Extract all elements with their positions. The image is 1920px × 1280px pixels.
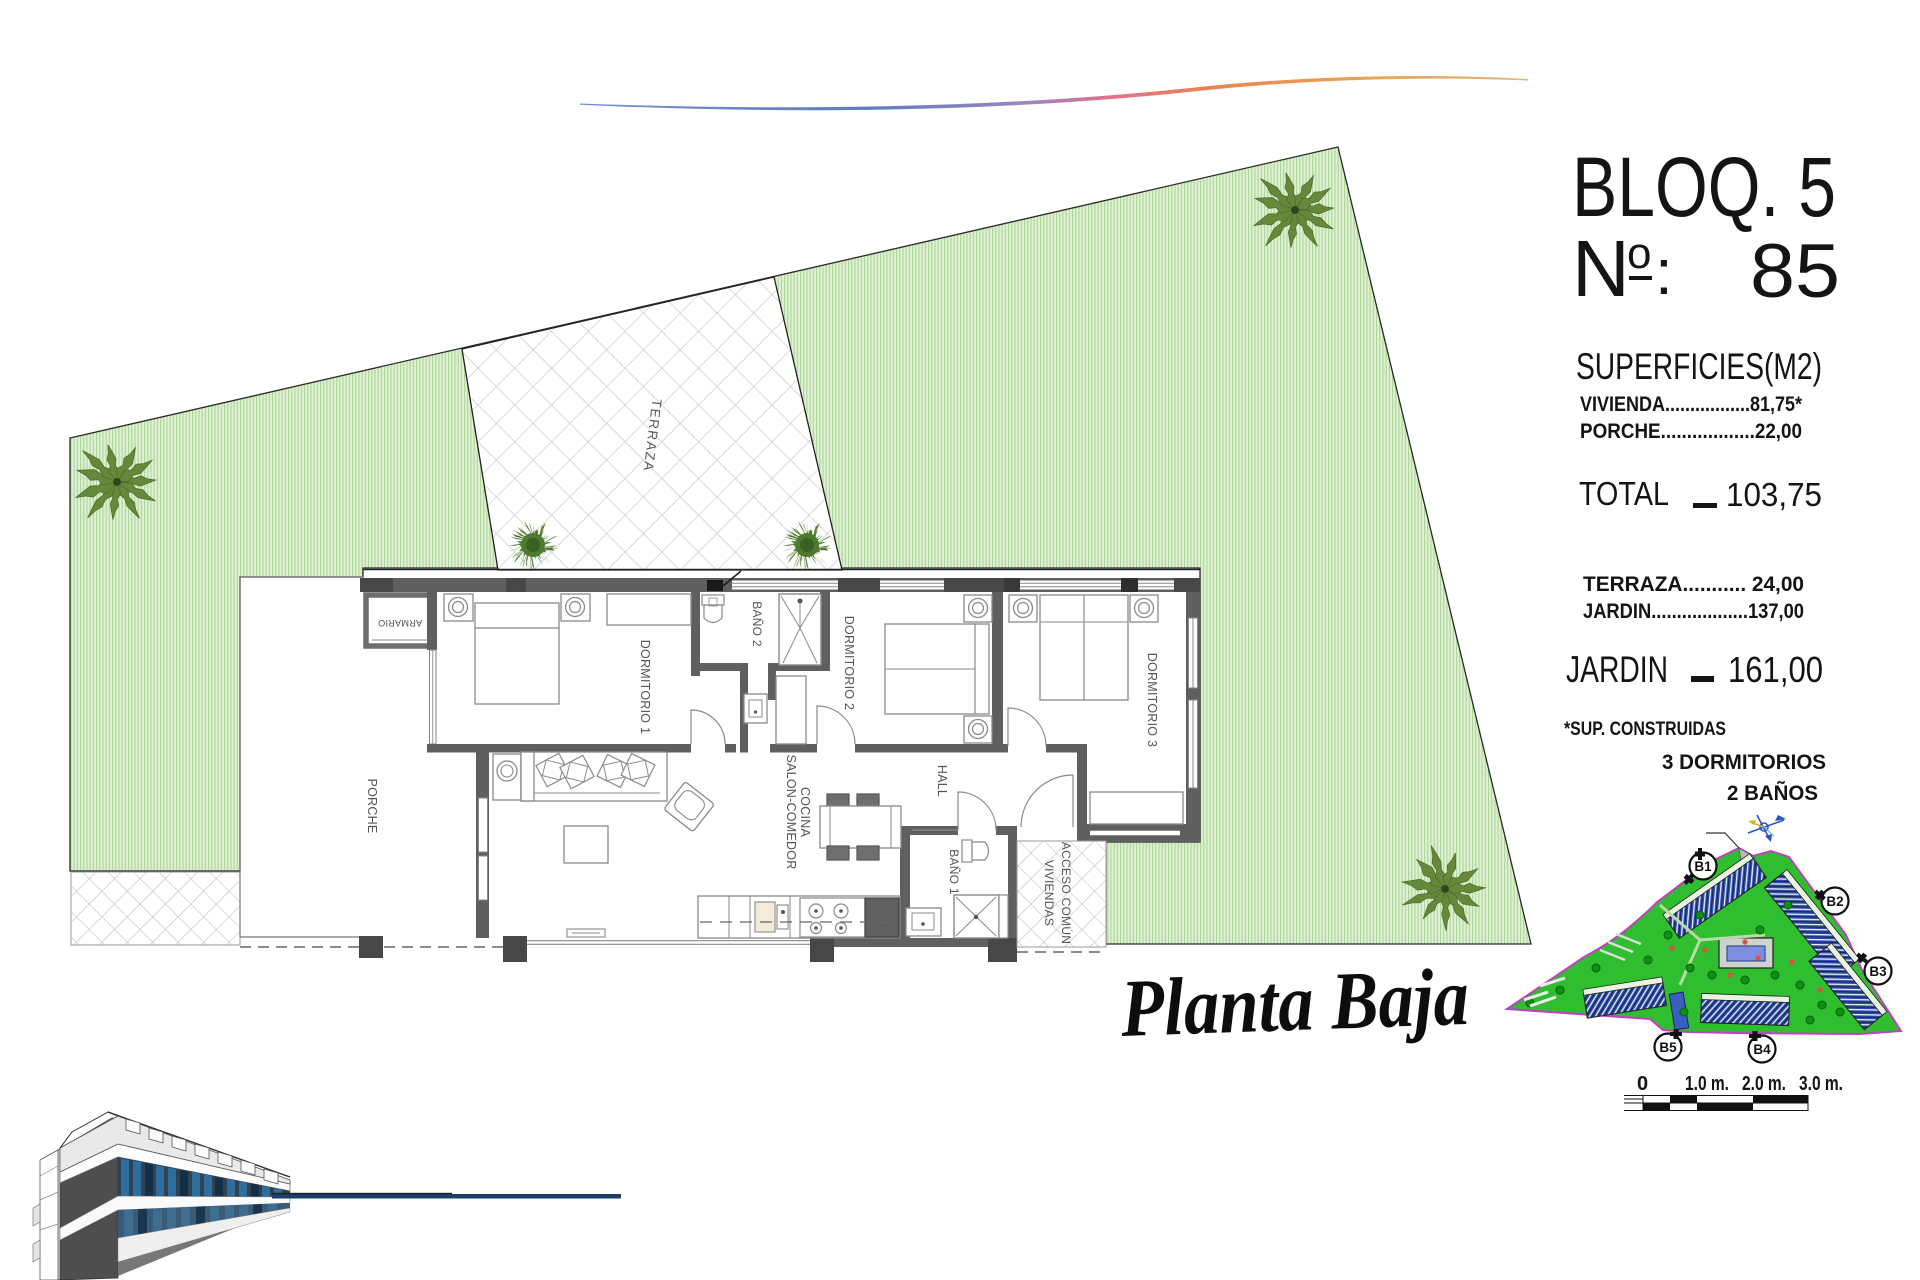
svg-text:B3: B3 — [1869, 964, 1887, 979]
svg-text:DORMITORIO 3: DORMITORIO 3 — [1145, 653, 1159, 747]
svg-text:B5: B5 — [1659, 1040, 1677, 1055]
svg-text:JARDIN...................137,0: JARDIN...................137,00 — [1583, 599, 1804, 623]
svg-text:BAÑO 2: BAÑO 2 — [750, 601, 764, 647]
svg-text:103,75: 103,75 — [1726, 476, 1822, 513]
svg-text:BAÑO 1: BAÑO 1 — [947, 849, 961, 895]
svg-text:PORCHE..................22,00: PORCHE..................22,00 — [1580, 419, 1802, 443]
svg-text:B1: B1 — [1694, 859, 1712, 874]
svg-text:o: o — [1627, 229, 1651, 278]
svg-text:COCINA: COCINA — [798, 787, 812, 838]
svg-text:161,00: 161,00 — [1728, 649, 1823, 690]
svg-text:2 BAÑOS: 2 BAÑOS — [1727, 780, 1818, 805]
svg-text:TERRAZA........... 24,00: TERRAZA........... 24,00 — [1583, 572, 1804, 596]
svg-text:1.0 m.: 1.0 m. — [1685, 1073, 1729, 1095]
svg-text:TOTAL: TOTAL — [1579, 475, 1669, 512]
svg-text:Planta Baja: Planta Baja — [1118, 951, 1470, 1054]
svg-text:3.0 m.: 3.0 m. — [1799, 1073, 1843, 1095]
svg-text:N: N — [1572, 224, 1630, 313]
svg-text:DORMITORIO 1: DORMITORIO 1 — [638, 640, 652, 734]
svg-text:0: 0 — [1637, 1073, 1648, 1095]
svg-text:85: 85 — [1750, 229, 1840, 314]
svg-text:SALON-COMEDOR: SALON-COMEDOR — [784, 754, 798, 869]
svg-text:SUPERFICIES(M2): SUPERFICIES(M2) — [1576, 346, 1822, 387]
svg-text:VIVIENDA.................81,75: VIVIENDA.................81,75* — [1580, 392, 1803, 416]
svg-text:PORCHE: PORCHE — [365, 779, 379, 834]
svg-text:JARDIN: JARDIN — [1566, 649, 1668, 690]
svg-text:*SUP. CONSTRUIDAS: *SUP. CONSTRUIDAS — [1564, 719, 1726, 740]
svg-text:ARMARIO: ARMARIO — [378, 618, 422, 628]
svg-text:BLOQ. 5: BLOQ. 5 — [1572, 140, 1836, 234]
svg-text:3 DORMITORIOS: 3 DORMITORIOS — [1662, 750, 1826, 774]
svg-text:HALL: HALL — [935, 765, 949, 797]
svg-text:B4: B4 — [1753, 1042, 1771, 1057]
svg-text:VIVIENDAS: VIVIENDAS — [1042, 860, 1056, 926]
svg-text:DORMITORIO 2: DORMITORIO 2 — [842, 616, 856, 710]
svg-text:ACCESO COMÚN: ACCESO COMÚN — [1059, 842, 1074, 944]
svg-text::: : — [1655, 236, 1673, 308]
svg-text:2.0 m.: 2.0 m. — [1742, 1073, 1786, 1095]
svg-text:B2: B2 — [1826, 894, 1843, 909]
